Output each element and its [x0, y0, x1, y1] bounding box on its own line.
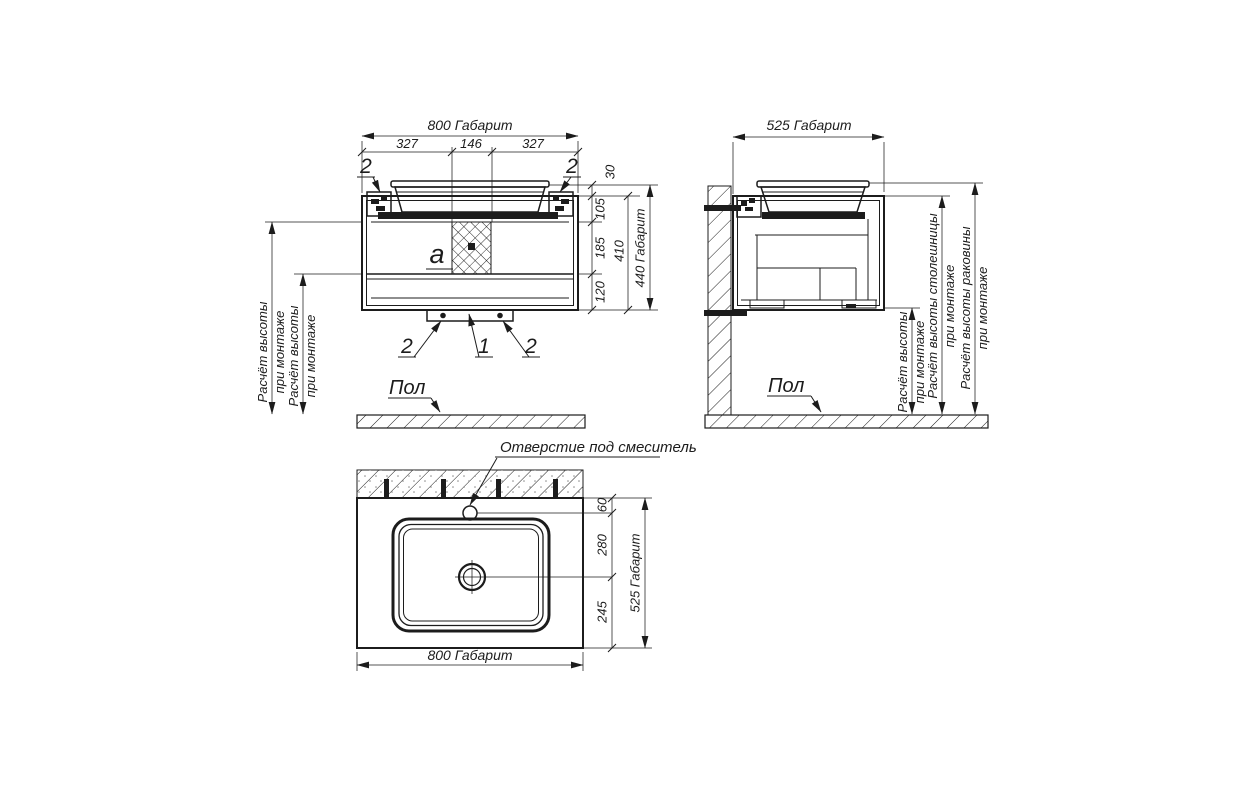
svg-text:Расчёт высоты раковины: Расчёт высоты раковины — [958, 226, 973, 389]
wall-top — [357, 470, 583, 498]
svg-text:525 Габарит: 525 Габарит — [627, 533, 642, 612]
svg-text:2: 2 — [400, 335, 413, 358]
svg-text:30: 30 — [602, 164, 617, 179]
detail-a-region: a — [426, 222, 491, 274]
dim-heights-right: 30 105 185 120 410 440 Габарит — [549, 164, 658, 314]
svg-text:105: 105 — [592, 197, 607, 219]
svg-text:245: 245 — [594, 600, 609, 623]
svg-text:185: 185 — [592, 236, 607, 258]
detail-a-label: a — [429, 239, 444, 269]
svg-text:Расчёт высоты: Расчёт высоты — [286, 305, 301, 406]
svg-text:2: 2 — [565, 155, 578, 178]
svg-text:Расчёт высоты столешницы: Расчёт высоты столешницы — [925, 213, 940, 399]
drain — [455, 560, 612, 594]
svg-text:2: 2 — [524, 335, 537, 358]
svg-text:1: 1 — [478, 335, 490, 358]
dim-overall-depth-side: 525 Габарит — [733, 117, 884, 194]
sink-basin-top — [393, 519, 549, 631]
floor-label-front: Пол — [389, 377, 425, 399]
floor-side: Пол — [705, 375, 988, 428]
svg-text:при монтаже: при монтаже — [272, 311, 287, 394]
dim-mount-heights-side: Расчёт высоты при монтаже Расчёт высоты … — [869, 183, 990, 414]
svg-text:при монтаже: при монтаже — [975, 267, 990, 350]
dim-depth-chain-top: 60 280 245 525 Габарит — [583, 494, 652, 652]
svg-text:800 Габарит: 800 Габарит — [427, 117, 512, 133]
svg-text:при монтаже: при монтаже — [303, 315, 318, 398]
dim-sections-top: 327 146 327 — [358, 136, 582, 156]
svg-text:525 Габарит: 525 Габарит — [766, 117, 851, 133]
wall-side — [704, 186, 747, 415]
floor-label-side: Пол — [768, 375, 804, 397]
svg-text:120: 120 — [592, 280, 607, 302]
dim-mount-heights-left: Расчёт высоты при монтаже Расчёт высоты … — [255, 222, 362, 414]
side-view: Пол 525 Га — [704, 117, 990, 428]
top-view: Отверстие под смеситель 60 280 245 525 Г… — [357, 439, 697, 671]
svg-text:440 Габарит: 440 Габарит — [632, 208, 647, 287]
svg-text:327: 327 — [396, 136, 418, 151]
floor-front: Пол — [357, 377, 585, 428]
front-view: a 800 Габарит 327 146 327 2 — [255, 117, 658, 428]
callout-rail-right: 2 — [503, 321, 540, 358]
svg-text:2: 2 — [359, 155, 372, 178]
technical-drawing-vanity: a 800 Габарит 327 146 327 2 — [0, 0, 1251, 800]
svg-text:327: 327 — [522, 136, 544, 151]
dim-overall-width-top: 800 Габарит — [357, 647, 583, 671]
svg-text:Расчёт высоты: Расчёт высоты — [255, 301, 270, 402]
svg-text:Расчёт высоты: Расчёт высоты — [895, 311, 910, 412]
svg-text:280: 280 — [594, 533, 609, 556]
svg-text:800 Габарит: 800 Габарит — [427, 647, 512, 663]
svg-text:410: 410 — [611, 239, 626, 261]
svg-text:146: 146 — [460, 136, 482, 151]
callout-rail-left: 2 — [398, 321, 441, 358]
faucet-hole-label: Отверстие под смеситель — [500, 439, 697, 456]
svg-text:при монтаже: при монтаже — [942, 265, 957, 348]
svg-text:60: 60 — [594, 497, 609, 512]
callout-bracket-left: 2 — [357, 155, 380, 192]
